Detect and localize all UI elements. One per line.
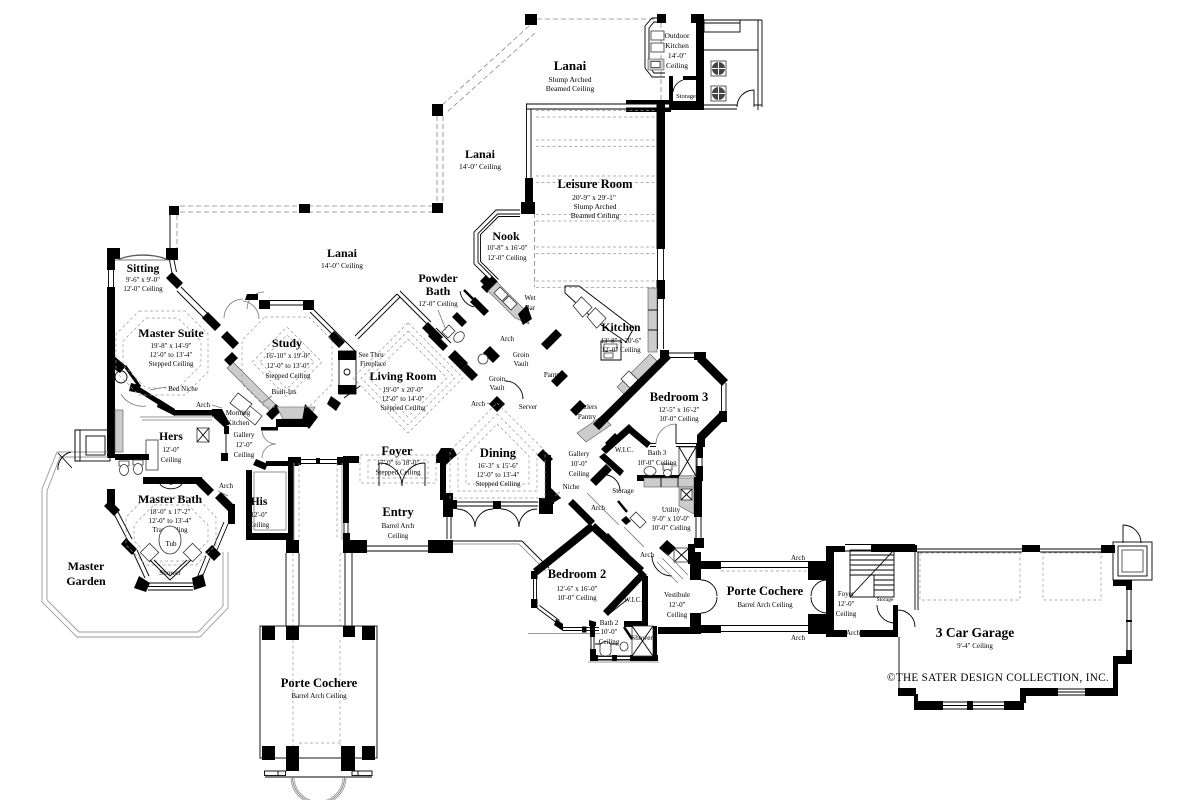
svg-text:Ceiling: Ceiling [667,611,688,619]
svg-text:Arch: Arch [219,482,233,490]
svg-text:Bath 3: Bath 3 [648,449,667,457]
svg-text:Lanai: Lanai [554,58,587,73]
svg-text:Lanai: Lanai [465,147,496,161]
svg-text:Wet: Wet [524,294,535,302]
svg-text:Kitchen: Kitchen [227,419,250,427]
svg-text:12'-0" Ceiling: 12'-0" Ceiling [601,346,641,354]
svg-text:Pantry: Pantry [578,413,597,421]
svg-text:Porte Cochere: Porte Cochere [727,584,804,598]
svg-text:12'-0": 12'-0" [163,446,180,454]
svg-text:Arch: Arch [500,335,514,343]
svg-text:12'-0" Ceiling: 12'-0" Ceiling [487,254,527,262]
svg-text:Kitchen: Kitchen [602,322,642,334]
svg-text:Groin: Groin [513,351,530,359]
svg-text:14'-0" Ceiling: 14'-0" Ceiling [321,261,363,270]
svg-text:Tub: Tub [165,540,177,548]
svg-text:12'-6" x 16'-0": 12'-6" x 16'-0" [557,585,598,593]
svg-text:19'-8" x 14'-9": 19'-8" x 14'-9" [151,342,192,350]
svg-text:©THE SATER DESIGN COLLECTION,: ©THE SATER DESIGN COLLECTION, INC. [887,672,1109,684]
svg-text:Leisure Room: Leisure Room [557,177,633,191]
svg-text:Garden: Garden [66,574,106,588]
svg-text:Ceiling: Ceiling [666,61,688,70]
svg-text:12'-5" x 16'-2": 12'-5" x 16'-2" [659,406,700,414]
svg-text:Sitting: Sitting [127,263,160,275]
svg-text:Powder: Powder [418,271,458,285]
svg-text:12'-0" to 13'-4": 12'-0" to 13'-4" [149,517,192,525]
svg-text:12'-0" to 14'-0": 12'-0" to 14'-0" [382,395,425,403]
svg-text:13'-8" x 20'-6": 13'-8" x 20'-6" [601,337,642,345]
svg-text:10'-0" Ceiling: 10'-0" Ceiling [637,459,677,467]
svg-text:Master Bath: Master Bath [138,492,202,506]
svg-text:Vestibule: Vestibule [664,591,690,599]
svg-text:Ceiling: Ceiling [836,610,857,618]
svg-text:12'-0" Ceiling: 12'-0" Ceiling [123,285,163,293]
svg-text:Outdoor: Outdoor [665,31,691,40]
svg-text:Vault: Vault [490,384,505,392]
svg-text:9'-4" Ceiling: 9'-4" Ceiling [957,642,993,650]
svg-text:Lanai: Lanai [327,246,358,260]
svg-text:10'-0": 10'-0" [571,460,588,468]
svg-text:Groin: Groin [489,375,506,383]
svg-text:Pantry: Pantry [544,371,563,379]
svg-text:Storage: Storage [676,93,696,100]
svg-text:Slump Arched: Slump Arched [573,202,616,211]
svg-text:3 Car Garage: 3 Car Garage [936,625,1014,640]
svg-text:16'-3" x 15'-6": 16'-3" x 15'-6" [478,462,519,470]
svg-text:Arch: Arch [471,400,485,408]
svg-text:Server: Server [519,403,538,411]
svg-text:Beamed Ceiling: Beamed Ceiling [546,84,595,93]
svg-text:10'-0": 10'-0" [601,628,618,636]
svg-text:12'-0": 12'-0" [669,601,686,609]
svg-text:14'-0": 14'-0" [668,51,686,60]
svg-text:Porte Cochere: Porte Cochere [281,676,358,690]
svg-text:18'-0" x 17'-2": 18'-0" x 17'-2" [150,508,191,516]
svg-text:Arch: Arch [791,554,805,562]
svg-text:Niche: Niche [563,483,580,491]
svg-text:See Thru: See Thru [358,351,384,359]
svg-text:Vault: Vault [514,360,529,368]
svg-text:Ceiling: Ceiling [161,456,182,464]
svg-text:Dining: Dining [480,446,517,460]
svg-text:Bar: Bar [525,304,536,312]
svg-text:Shower: Shower [631,634,653,642]
svg-text:Shower: Shower [159,569,181,577]
svg-text:Stepped Ceiling: Stepped Ceiling [381,404,426,412]
svg-text:12'-0": 12'-0" [251,511,268,519]
svg-text:Barrel Arch Ceiling: Barrel Arch Ceiling [737,601,793,609]
svg-text:Bed Niche: Bed Niche [168,385,198,393]
svg-text:Built-Ins: Built-Ins [272,388,297,396]
svg-text:Stepped Ceiling: Stepped Ceiling [149,360,194,368]
svg-text:10'-0" Ceiling: 10'-0" Ceiling [659,415,699,423]
svg-text:Storage: Storage [612,487,633,495]
svg-text:Ceiling: Ceiling [234,451,255,459]
svg-text:Nook: Nook [492,229,520,243]
svg-text:12'-0": 12'-0" [236,441,253,449]
svg-text:Arch: Arch [196,401,210,409]
svg-text:Stepped Ceiling: Stepped Ceiling [476,480,521,488]
svg-text:10'-0" Ceiling: 10'-0" Ceiling [557,594,597,602]
svg-text:Gallery: Gallery [569,450,590,458]
svg-text:Arch: Arch [591,504,605,512]
svg-text:12'-0" to 13'-4": 12'-0" to 13'-4" [477,471,520,479]
svg-text:Storage: Storage [877,597,894,603]
svg-text:Bedroom 2: Bedroom 2 [548,567,606,581]
svg-text:Bedroom 3: Bedroom 3 [650,390,708,404]
svg-text:10'-0" Ceiling: 10'-0" Ceiling [651,524,691,532]
svg-text:Slump Arched: Slump Arched [548,75,591,84]
svg-text:Hers: Hers [159,431,183,443]
svg-text:Entry: Entry [382,505,414,519]
svg-text:Barrel Arch Ceiling: Barrel Arch Ceiling [291,692,347,700]
svg-text:Beamed Ceiling: Beamed Ceiling [571,211,620,220]
svg-text:12'-0" Ceiling: 12'-0" Ceiling [418,300,458,308]
svg-text:Foyer: Foyer [838,590,855,598]
svg-text:Gallery: Gallery [234,431,255,439]
svg-text:Kitchen: Kitchen [665,41,689,50]
svg-text:10'-8" x 16'-0": 10'-8" x 16'-0" [487,244,528,252]
svg-text:Morning: Morning [226,409,251,417]
svg-text:Bath 2: Bath 2 [600,619,619,627]
svg-text:Stepped Ceiling: Stepped Ceiling [376,469,421,477]
svg-text:Ceiling: Ceiling [388,532,409,540]
svg-text:Arch: Arch [846,629,860,637]
svg-text:Bath: Bath [426,284,451,298]
svg-text:Living Room: Living Room [369,369,436,383]
svg-text:14'-0" Ceiling: 14'-0" Ceiling [459,162,501,171]
svg-text:Master Suite: Master Suite [138,326,204,340]
svg-text:W.I.C.: W.I.C. [615,446,633,454]
svg-text:12'-0": 12'-0" [838,600,855,608]
svg-text:12'-0" to 13'-4": 12'-0" to 13'-4" [150,351,193,359]
svg-text:Ceiling: Ceiling [599,638,620,646]
svg-text:Arch: Arch [791,634,805,642]
svg-text:9'-0" x 10'-0": 9'-0" x 10'-0" [652,515,690,523]
svg-text:Ceiling: Ceiling [569,470,590,478]
svg-text:12'-0" to 13'-0": 12'-0" to 13'-0" [267,362,310,370]
svg-text:Ceiling: Ceiling [249,521,270,529]
svg-text:20'-9" x 29'-1": 20'-9" x 29'-1" [572,193,616,202]
svg-text:Foyer: Foyer [381,444,413,458]
svg-text:19'-0" x 20'-0": 19'-0" x 20'-0" [383,386,424,394]
svg-text:9'-6" x 9'-0": 9'-6" x 9'-0" [126,276,160,284]
svg-text:Butlers: Butlers [577,403,597,411]
svg-text:Stepped Ceiling: Stepped Ceiling [266,372,311,380]
svg-text:Study: Study [272,336,302,350]
svg-text:Utility: Utility [662,506,681,514]
svg-text:16'-10" x 19'-0": 16'-10" x 19'-0" [266,352,311,360]
svg-text:His: His [251,496,268,508]
svg-text:Barrel Arch: Barrel Arch [382,522,415,530]
svg-text:Master: Master [68,559,105,573]
